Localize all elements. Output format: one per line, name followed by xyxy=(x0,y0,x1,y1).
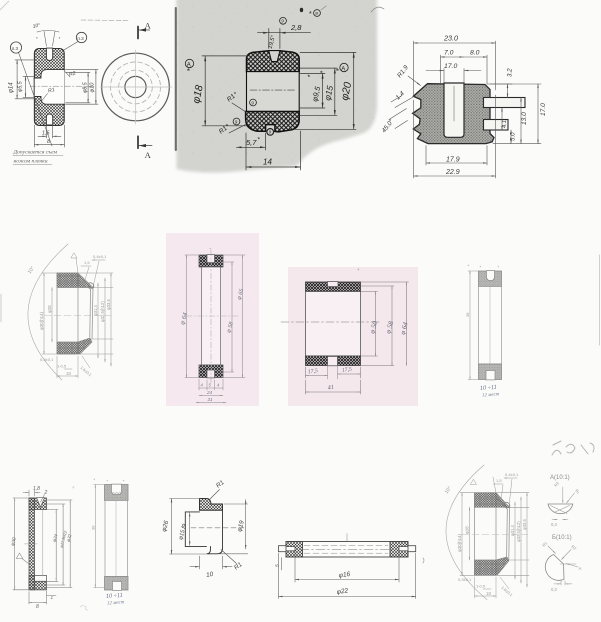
svg-text:φ30(h14): φ30(h14) xyxy=(457,533,462,552)
svg-text:1,5: 1,5 xyxy=(42,131,50,137)
svg-text:3.2: 3.2 xyxy=(507,68,514,77)
svg-text:φ30(h14): φ30(h14) xyxy=(39,311,44,330)
svg-text:А(10:1): А(10:1) xyxy=(550,475,570,481)
svg-text:ножом пленки: ножом пленки xyxy=(14,159,48,165)
svg-text:9: 9 xyxy=(269,130,272,135)
svg-text:А: А xyxy=(187,62,191,68)
svg-text:5: 5 xyxy=(275,564,281,567)
svg-text:φ5,5: φ5,5 xyxy=(18,81,24,92)
svg-text:+: + xyxy=(357,267,360,272)
svg-text:А: А xyxy=(341,66,345,72)
svg-text:*: * xyxy=(36,36,38,41)
svg-text:φ10: φ10 xyxy=(90,82,96,93)
svg-text:14: 14 xyxy=(263,158,272,167)
svg-text:17.9: 17.9 xyxy=(446,157,460,164)
svg-text:8: 8 xyxy=(36,604,39,610)
svg-text:31: 31 xyxy=(208,397,214,402)
svg-text:0,3: 0,3 xyxy=(551,587,557,592)
svg-text:Б(10:1): Б(10:1) xyxy=(552,535,572,541)
svg-text:17.0: 17.0 xyxy=(540,103,547,116)
svg-text:2: 2 xyxy=(44,490,48,496)
svg-text:0,4±0,1: 0,4±0,1 xyxy=(505,472,519,477)
svg-text:5.0: 5.0 xyxy=(510,132,517,141)
svg-text:1-0,5: 1-0,5 xyxy=(476,584,486,589)
svg-text:4.1: 4.1 xyxy=(502,120,508,128)
svg-text:п.3: п.3 xyxy=(77,36,84,41)
svg-text:φ33,5: φ33,5 xyxy=(106,298,111,310)
svg-text:38: 38 xyxy=(91,525,96,530)
svg-text:φ28: φ28 xyxy=(47,305,52,313)
svg-text:1-0,5: 1-0,5 xyxy=(57,364,67,369)
svg-text:*: * xyxy=(59,36,61,41)
svg-text:1: 1 xyxy=(51,595,54,600)
svg-text:*: * xyxy=(309,11,312,18)
svg-text:10 ÷11: 10 ÷11 xyxy=(480,384,497,392)
svg-text:0,3±0,1: 0,3±0,1 xyxy=(40,357,54,362)
svg-text:0,3±0,1: 0,3±0,1 xyxy=(458,577,472,582)
svg-text:5,7: 5,7 xyxy=(246,138,257,147)
svg-text:13.0: 13.0 xyxy=(521,112,528,125)
svg-text:Допускается съем: Допускается съем xyxy=(13,150,58,156)
svg-text:φ8,5: φ8,5 xyxy=(83,82,89,93)
svg-text:1,8: 1,8 xyxy=(33,486,40,492)
svg-text:А: А xyxy=(145,20,152,30)
svg-text:10 ÷11: 10 ÷11 xyxy=(106,592,123,600)
svg-text:9: 9 xyxy=(315,11,318,16)
svg-text:1,5: 1,5 xyxy=(84,260,90,265)
svg-text:0,4: 0,4 xyxy=(551,522,557,527)
svg-text:9: 9 xyxy=(251,100,254,105)
svg-text:А: А xyxy=(579,566,582,571)
svg-text:17.0: 17.0 xyxy=(444,63,457,70)
svg-text:8.0: 8.0 xyxy=(470,50,480,57)
svg-text:22.9: 22.9 xyxy=(445,169,460,176)
svg-text:0,4±0,1: 0,4±0,1 xyxy=(93,254,107,259)
svg-text:φ33,5: φ33,5 xyxy=(522,518,527,530)
svg-text:φ14: φ14 xyxy=(9,82,15,93)
svg-text:9: 9 xyxy=(281,19,284,24)
svg-text:φ32,5(h12): φ32,5(h12) xyxy=(516,521,521,542)
svg-text:10: 10 xyxy=(486,591,491,596)
svg-text:2,8: 2,8 xyxy=(290,23,302,32)
svg-text:10: 10 xyxy=(66,371,71,376)
svg-text:24: 24 xyxy=(206,390,213,395)
svg-text:7.0: 7.0 xyxy=(444,50,454,57)
svg-text:φ31,4: φ31,4 xyxy=(93,304,98,316)
svg-text:А: А xyxy=(145,150,152,160)
svg-text:п.3: п.3 xyxy=(12,46,19,51)
svg-text:φ32,5(h12): φ32,5(h12) xyxy=(100,301,105,322)
svg-text:23.0: 23.0 xyxy=(443,34,458,43)
svg-text:9: 9 xyxy=(235,119,238,124)
svg-text:1,5: 1,5 xyxy=(496,478,502,483)
svg-text:φ28: φ28 xyxy=(465,526,470,534)
svg-text:38: 38 xyxy=(465,312,470,317)
svg-text:41: 41 xyxy=(327,384,334,392)
